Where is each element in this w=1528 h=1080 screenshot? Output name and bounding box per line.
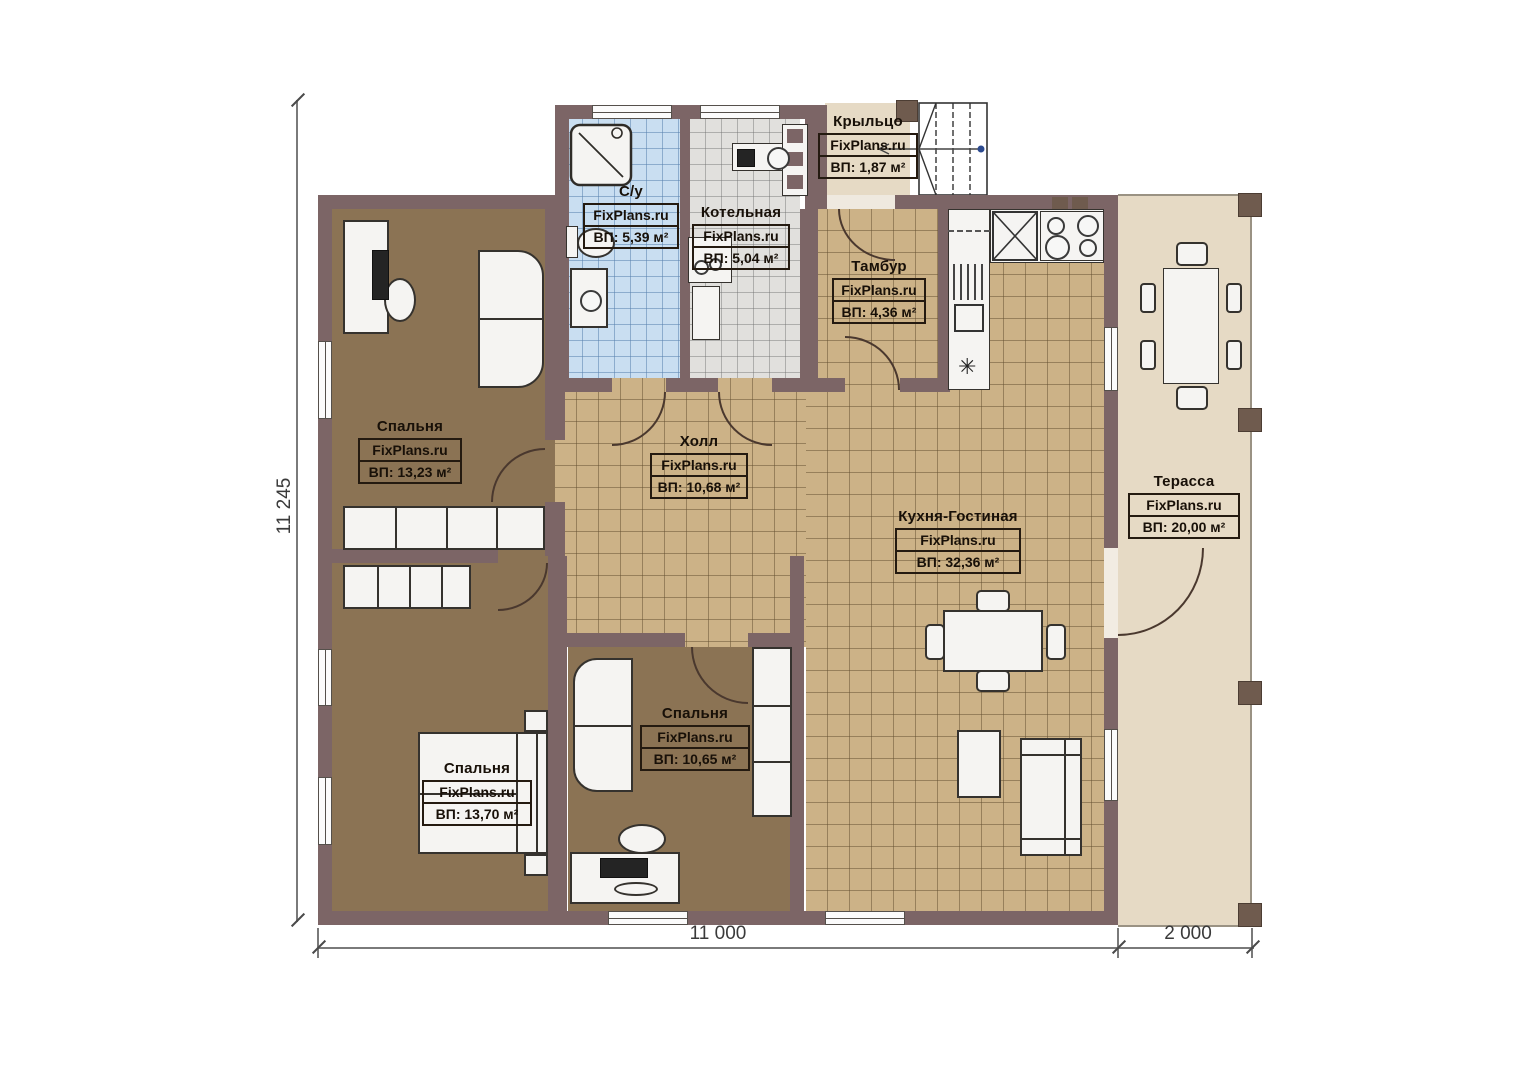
room-label-bathroom: С/у FixPlans.ru ВП: 5,39 м² bbox=[583, 183, 679, 249]
dining-table bbox=[943, 610, 1043, 672]
wall-bedroom2-top-2 bbox=[748, 633, 792, 647]
ln bbox=[1064, 740, 1066, 854]
sink-cabinet bbox=[992, 211, 1038, 261]
fridge-vent bbox=[953, 264, 985, 300]
room-label-kitchen-living: Кухня-Гостиная FixPlans.ru ВП: 32,36 м² bbox=[895, 508, 1021, 574]
room-label-bedroom-3: Спальня FixPlans.ru ВП: 13,70 м² bbox=[422, 760, 532, 826]
terrace-chair bbox=[1140, 340, 1156, 370]
window-bathroom-top bbox=[592, 105, 672, 119]
circ bbox=[1079, 239, 1097, 257]
room-label-bedroom-2: Спальня FixPlans.ru ВП: 10,65 м² bbox=[640, 705, 750, 771]
room-name: Холл bbox=[650, 433, 748, 450]
desk-chair bbox=[618, 824, 666, 854]
room-name: Спальня bbox=[640, 705, 750, 722]
wall-vestibule-bottom-1 bbox=[818, 378, 845, 392]
wall-kitchen-divider bbox=[790, 556, 804, 911]
dim-ext-mid bbox=[1117, 928, 1119, 958]
circ bbox=[1077, 215, 1099, 237]
watermark-fixplans: FixPlans.ru bbox=[694, 226, 788, 246]
floor-hall bbox=[555, 378, 815, 647]
dim-tick bbox=[291, 93, 305, 107]
ln bbox=[787, 129, 803, 143]
lb: FixPlans.ru ВП: 4,36 м² bbox=[832, 278, 926, 324]
ln bbox=[446, 508, 448, 548]
lb: FixPlans.ru ВП: 32,36 м² bbox=[895, 528, 1021, 574]
room-area: ВП: 10,68 м² bbox=[652, 475, 746, 497]
watermark-fixplans: FixPlans.ru bbox=[1130, 495, 1238, 515]
dining-chair bbox=[1046, 624, 1066, 660]
boiler-panel bbox=[737, 149, 755, 167]
wall-bedroom3-right bbox=[548, 556, 567, 911]
ln bbox=[1022, 838, 1080, 840]
window-kitchen-right-2 bbox=[1104, 729, 1118, 801]
room-area: ВП: 5,39 м² bbox=[585, 225, 677, 247]
terrace-chair bbox=[1226, 340, 1242, 370]
wall-vent-block bbox=[1052, 197, 1068, 209]
room-area: ВП: 5,04 м² bbox=[694, 246, 788, 268]
ln bbox=[480, 318, 542, 320]
ln bbox=[395, 508, 397, 548]
terrace-post bbox=[1238, 193, 1262, 217]
wall-bedroom1-right-lower bbox=[545, 502, 565, 556]
terrace-table bbox=[1163, 268, 1219, 384]
terrace-edge-top bbox=[1118, 194, 1252, 196]
room-label-terrace: Терасса FixPlans.ru ВП: 20,00 м² bbox=[1128, 473, 1240, 539]
room-name: Терасса bbox=[1128, 473, 1240, 490]
nightstand bbox=[524, 710, 548, 732]
room-area: ВП: 1,87 м² bbox=[820, 155, 916, 177]
room-name: Котельная bbox=[692, 204, 790, 221]
dim-label-house-width: 11 000 bbox=[658, 923, 778, 945]
circ bbox=[1047, 217, 1065, 235]
room-area: ВП: 32,36 м² bbox=[897, 550, 1019, 572]
dining-chair bbox=[976, 670, 1010, 692]
terrace-chair bbox=[1176, 386, 1208, 410]
keyboard-tray bbox=[614, 882, 658, 896]
lb: FixPlans.ru ВП: 20,00 м² bbox=[1128, 493, 1240, 539]
lb: FixPlans.ru ВП: 5,39 м² bbox=[583, 203, 679, 249]
wall-hall-top-2 bbox=[666, 378, 718, 392]
dim-line-bottom bbox=[318, 947, 1254, 949]
terrace-post bbox=[1238, 681, 1262, 705]
wardrobe bbox=[343, 506, 545, 550]
room-area: ВП: 4,36 м² bbox=[834, 300, 924, 322]
window-kitchen-right-1 bbox=[1104, 327, 1118, 391]
room-area: ВП: 20,00 м² bbox=[1130, 515, 1238, 537]
watermark-fixplans: FixPlans.ru bbox=[897, 530, 1019, 550]
sofa bbox=[478, 250, 544, 388]
dim-label-height: 11 245 bbox=[274, 461, 296, 551]
computer-monitor bbox=[372, 250, 389, 300]
watermark-fixplans: FixPlans.ru bbox=[585, 205, 677, 225]
lb: FixPlans.ru ВП: 13,70 м² bbox=[422, 780, 532, 826]
room-area: ВП: 10,65 м² bbox=[642, 747, 748, 769]
ln bbox=[754, 705, 790, 707]
sofa bbox=[573, 658, 633, 792]
circle bbox=[978, 146, 985, 153]
ln bbox=[441, 567, 443, 607]
lb: FixPlans.ru ВП: 10,65 м² bbox=[640, 725, 750, 771]
ln bbox=[377, 567, 379, 607]
watermark-fixplans: FixPlans.ru bbox=[642, 727, 748, 747]
dim-label-terrace-width: 2 000 bbox=[1148, 923, 1228, 945]
dining-chair bbox=[925, 624, 945, 660]
room-label-vestibule: Тамбур FixPlans.ru ВП: 4,36 м² bbox=[832, 258, 926, 324]
circ bbox=[1045, 235, 1070, 260]
window-bedroom3-left-2 bbox=[318, 777, 332, 845]
room-name: С/у bbox=[583, 183, 679, 200]
ln bbox=[1022, 754, 1080, 756]
room-label-bedroom-1: Спальня FixPlans.ru ВП: 13,23 м² bbox=[358, 418, 462, 484]
wall-vestibule-left bbox=[800, 209, 818, 390]
wall-hall-top-3 bbox=[772, 378, 818, 392]
ln bbox=[575, 725, 631, 727]
lb: FixPlans.ru ВП: 5,04 м² bbox=[692, 224, 790, 270]
room-label-porch: Крыльцо FixPlans.ru ВП: 1,87 м² bbox=[818, 113, 918, 179]
wall-bedroom1-right-upper bbox=[545, 209, 565, 440]
wall-vent-block bbox=[1072, 197, 1088, 209]
dim-tick bbox=[291, 913, 305, 927]
circ bbox=[580, 290, 602, 312]
terrace-chair bbox=[1176, 242, 1208, 266]
room-label-hall: Холл FixPlans.ru ВП: 10,68 м² bbox=[650, 433, 748, 499]
floor-plan-page: { "brand": "FixPlans.ru", "plan": { "typ… bbox=[0, 0, 1528, 1080]
ln bbox=[754, 761, 790, 763]
window-kitchen-bottom bbox=[825, 911, 905, 925]
living-sofa bbox=[1020, 738, 1082, 856]
wardrobe bbox=[752, 647, 792, 817]
room-area: ВП: 13,70 м² bbox=[424, 802, 530, 824]
lb: FixPlans.ru ВП: 13,23 м² bbox=[358, 438, 462, 484]
terrace-chair bbox=[1226, 283, 1242, 313]
ln bbox=[496, 508, 498, 548]
room-name: Тамбур bbox=[832, 258, 926, 275]
shower-cabin bbox=[569, 123, 633, 187]
wardrobe bbox=[343, 565, 471, 609]
entrance-threshold bbox=[827, 195, 895, 209]
counter-pass-line bbox=[948, 230, 990, 232]
lb: FixPlans.ru ВП: 1,87 м² bbox=[818, 133, 918, 179]
room-name: Кухня-Гостиная bbox=[895, 508, 1021, 525]
lb: FixPlans.ru ВП: 10,68 м² bbox=[650, 453, 748, 499]
computer-monitor bbox=[600, 858, 648, 878]
ln bbox=[536, 734, 538, 852]
terrace-post bbox=[1238, 903, 1262, 927]
washing-machine bbox=[570, 268, 608, 328]
wall-bedrooms-divider bbox=[332, 549, 498, 563]
ln bbox=[787, 175, 803, 189]
wall-outer-top-left bbox=[318, 195, 567, 209]
terrace-chair bbox=[1140, 283, 1156, 313]
dim-ext-right bbox=[1251, 928, 1253, 958]
ln bbox=[409, 567, 411, 607]
boiler-cabinet bbox=[692, 286, 720, 340]
watermark-fixplans: FixPlans.ru bbox=[820, 135, 916, 155]
terrace-edge-right bbox=[1250, 195, 1252, 927]
oven bbox=[954, 304, 984, 332]
watermark-fixplans: FixPlans.ru bbox=[834, 280, 924, 300]
window-boiler-top bbox=[700, 105, 780, 119]
nightstand bbox=[524, 854, 548, 876]
freezer-icon: ✳ bbox=[958, 356, 976, 378]
dim-ext-left bbox=[317, 928, 319, 958]
room-name: Спальня bbox=[422, 760, 532, 777]
window-bedroom1-left bbox=[318, 341, 332, 419]
terrace-door-opening bbox=[1104, 548, 1118, 638]
room-area: ВП: 13,23 м² bbox=[360, 460, 460, 482]
stove bbox=[1040, 211, 1104, 261]
coffee-table bbox=[957, 730, 1001, 798]
window-bedroom3-left-1 bbox=[318, 649, 332, 706]
wall-bedroom2-top-1 bbox=[567, 633, 685, 647]
terrace-post bbox=[1238, 408, 1262, 432]
watermark-fixplans: FixPlans.ru bbox=[424, 782, 530, 802]
dining-chair bbox=[976, 590, 1010, 612]
room-label-boiler-room: Котельная FixPlans.ru ВП: 5,04 м² bbox=[692, 204, 790, 270]
room-name: Крыльцо bbox=[818, 113, 918, 130]
dim-line-left bbox=[296, 100, 298, 922]
boiler-gauge bbox=[767, 147, 790, 170]
watermark-fixplans: FixPlans.ru bbox=[652, 455, 746, 475]
watermark-fixplans: FixPlans.ru bbox=[360, 440, 460, 460]
room-name: Спальня bbox=[358, 418, 462, 435]
